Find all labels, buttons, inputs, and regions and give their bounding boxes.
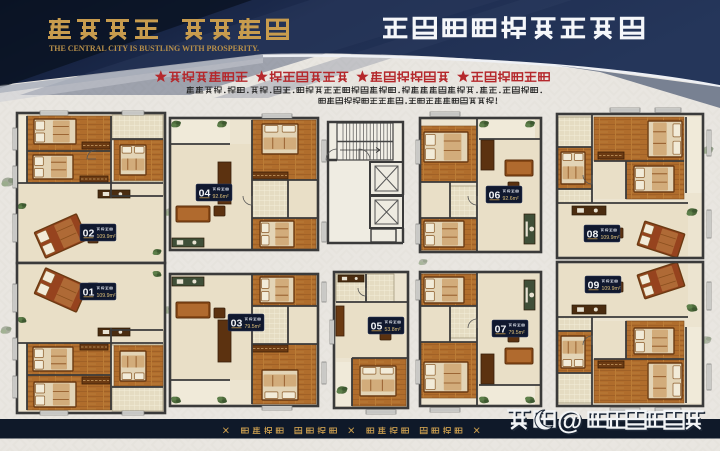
svg-text:109.9m²: 109.9m² xyxy=(601,235,620,241)
svg-text:109.9m²: 109.9m² xyxy=(602,286,621,292)
svg-text:79.5m²: 79.5m² xyxy=(509,330,525,336)
svg-text:109.9m²: 109.9m² xyxy=(97,293,116,299)
svg-text:92.6m²: 92.6m² xyxy=(213,194,229,200)
svg-text:92.6m²: 92.6m² xyxy=(503,196,519,202)
svg-text:53.8m²: 53.8m² xyxy=(385,327,401,333)
svg-text:109.9m²: 109.9m² xyxy=(97,234,116,240)
svg-text:@: @ xyxy=(557,405,582,435)
svg-text:79.5m²: 79.5m² xyxy=(245,324,261,330)
svg-text:THE CENTRAL CITY IS BUSTLING W: THE CENTRAL CITY IS BUSTLING WITH PROSPE… xyxy=(49,44,259,53)
